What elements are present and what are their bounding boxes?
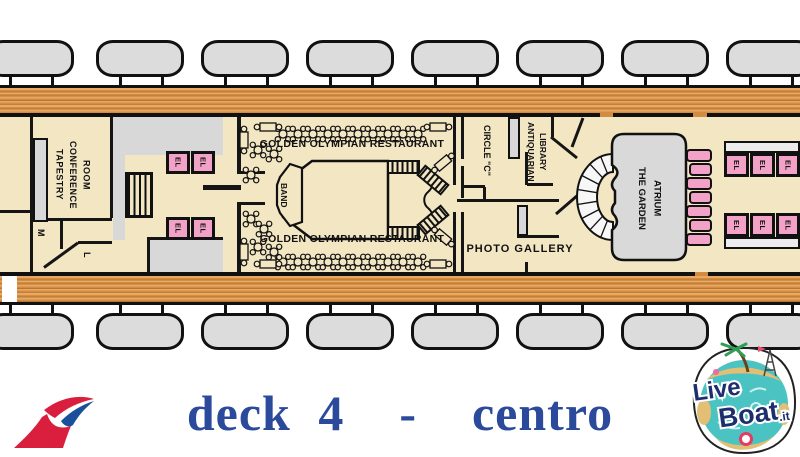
lifeboat	[96, 40, 184, 77]
lifeboat	[726, 40, 800, 77]
elevator: EL	[166, 217, 190, 240]
liveboat-logo: Live Boat .it	[688, 342, 800, 457]
elevator: EL	[166, 151, 190, 174]
wall-recess	[33, 138, 48, 222]
stairs	[125, 172, 153, 218]
deck-plan-page: EL EL EL EL	[0, 0, 800, 457]
carnival-logo	[6, 386, 106, 456]
lifeboat	[516, 313, 604, 350]
photo-gallery-label: PHOTO GALLERY	[460, 243, 580, 255]
library-label: ANTIQUARIAN LIBRARY	[524, 118, 548, 186]
lifeboat	[411, 40, 499, 77]
liveboat-text-it: .it	[778, 409, 791, 424]
ladies-room-label: L	[82, 246, 92, 264]
deck-opening	[2, 276, 17, 302]
lifeboat	[201, 313, 289, 350]
deck-title: deck 4 - centro	[100, 384, 700, 442]
elevator: EL	[191, 151, 215, 174]
promenade-deck-top	[0, 88, 800, 114]
lifeboat	[0, 313, 74, 350]
atrium-label: THE GARDEN ATRIUM	[634, 158, 664, 238]
circle-c-label: CIRCLE "C"	[482, 120, 492, 182]
tapestry-room-label: TAPESTRY CONFERENCE ROOM	[52, 122, 93, 228]
lifeboat	[201, 40, 289, 77]
restaurant-label-top: GOLDEN OLYMPIAN RESTAURANT	[252, 138, 452, 150]
lifeboat	[411, 313, 499, 350]
lifeboat	[306, 313, 394, 350]
lifeboat	[306, 40, 394, 77]
restaurant-label-bottom: GOLDEN OLYMPIAN RESTAURANT	[252, 233, 452, 245]
elevator: EL	[191, 217, 215, 240]
promenade-deck-bottom	[0, 276, 800, 302]
mens-room-label: M	[36, 224, 46, 242]
lifeboat	[621, 40, 709, 77]
lifeboat	[0, 40, 74, 77]
lifeboat	[516, 40, 604, 77]
lifeboat	[96, 313, 184, 350]
lifebuoy-icon	[741, 434, 752, 445]
band-stage-label: BAND	[279, 174, 289, 216]
